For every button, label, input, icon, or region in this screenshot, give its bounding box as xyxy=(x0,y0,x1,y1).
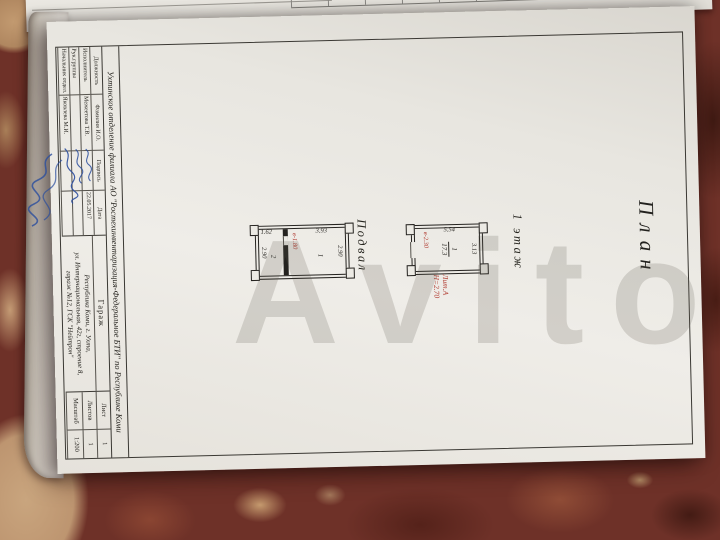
photo-scene: 80 7 0 7 7 План 1 этаж 5.54 3.13 xyxy=(0,0,720,540)
col-header-role: Должность xyxy=(89,47,102,95)
signature-overflow-scribble xyxy=(22,150,72,230)
underlying-page-line xyxy=(32,0,332,11)
scale-value: 1:200 xyxy=(67,430,84,458)
object-address-block: Гараж Республика Коми, г. Ухта, ул. Инте… xyxy=(62,236,110,392)
row-signature xyxy=(81,151,92,191)
sheet-value: 1 xyxy=(97,430,112,458)
row-role: Рук.группы xyxy=(68,47,80,95)
col-header-signature: Подпись xyxy=(92,151,105,191)
row-date: 22.05.2017 xyxy=(82,191,94,235)
sheets-total-value: 1 xyxy=(83,430,98,458)
row-role: Исполнитель xyxy=(79,47,91,95)
row-date xyxy=(72,191,84,235)
row-name: Яковлева М.И. xyxy=(58,95,70,151)
row-name: Межеетова Т.В. xyxy=(80,95,92,151)
row-role: Начальник отдел. xyxy=(57,47,69,95)
col-header-name: Фамилия И.О. xyxy=(90,95,103,151)
sheet-label: Лист xyxy=(96,392,111,430)
scale-label: Масштаб xyxy=(66,392,83,430)
row-signature xyxy=(71,151,82,191)
avito-watermark: Avito xyxy=(232,208,720,378)
title-block: Ухтинское отделение филиала АО "Ростехин… xyxy=(56,46,129,458)
col-header-date: Дата xyxy=(93,191,106,235)
sheet-info-table: Лист 1 Листов 1 Масштаб 1:200 xyxy=(66,391,112,459)
object-address: Республика Коми, г. Ухта, ул. Интернацио… xyxy=(62,236,96,392)
sheets-total-label: Листов xyxy=(82,392,97,430)
row-name xyxy=(69,95,81,151)
